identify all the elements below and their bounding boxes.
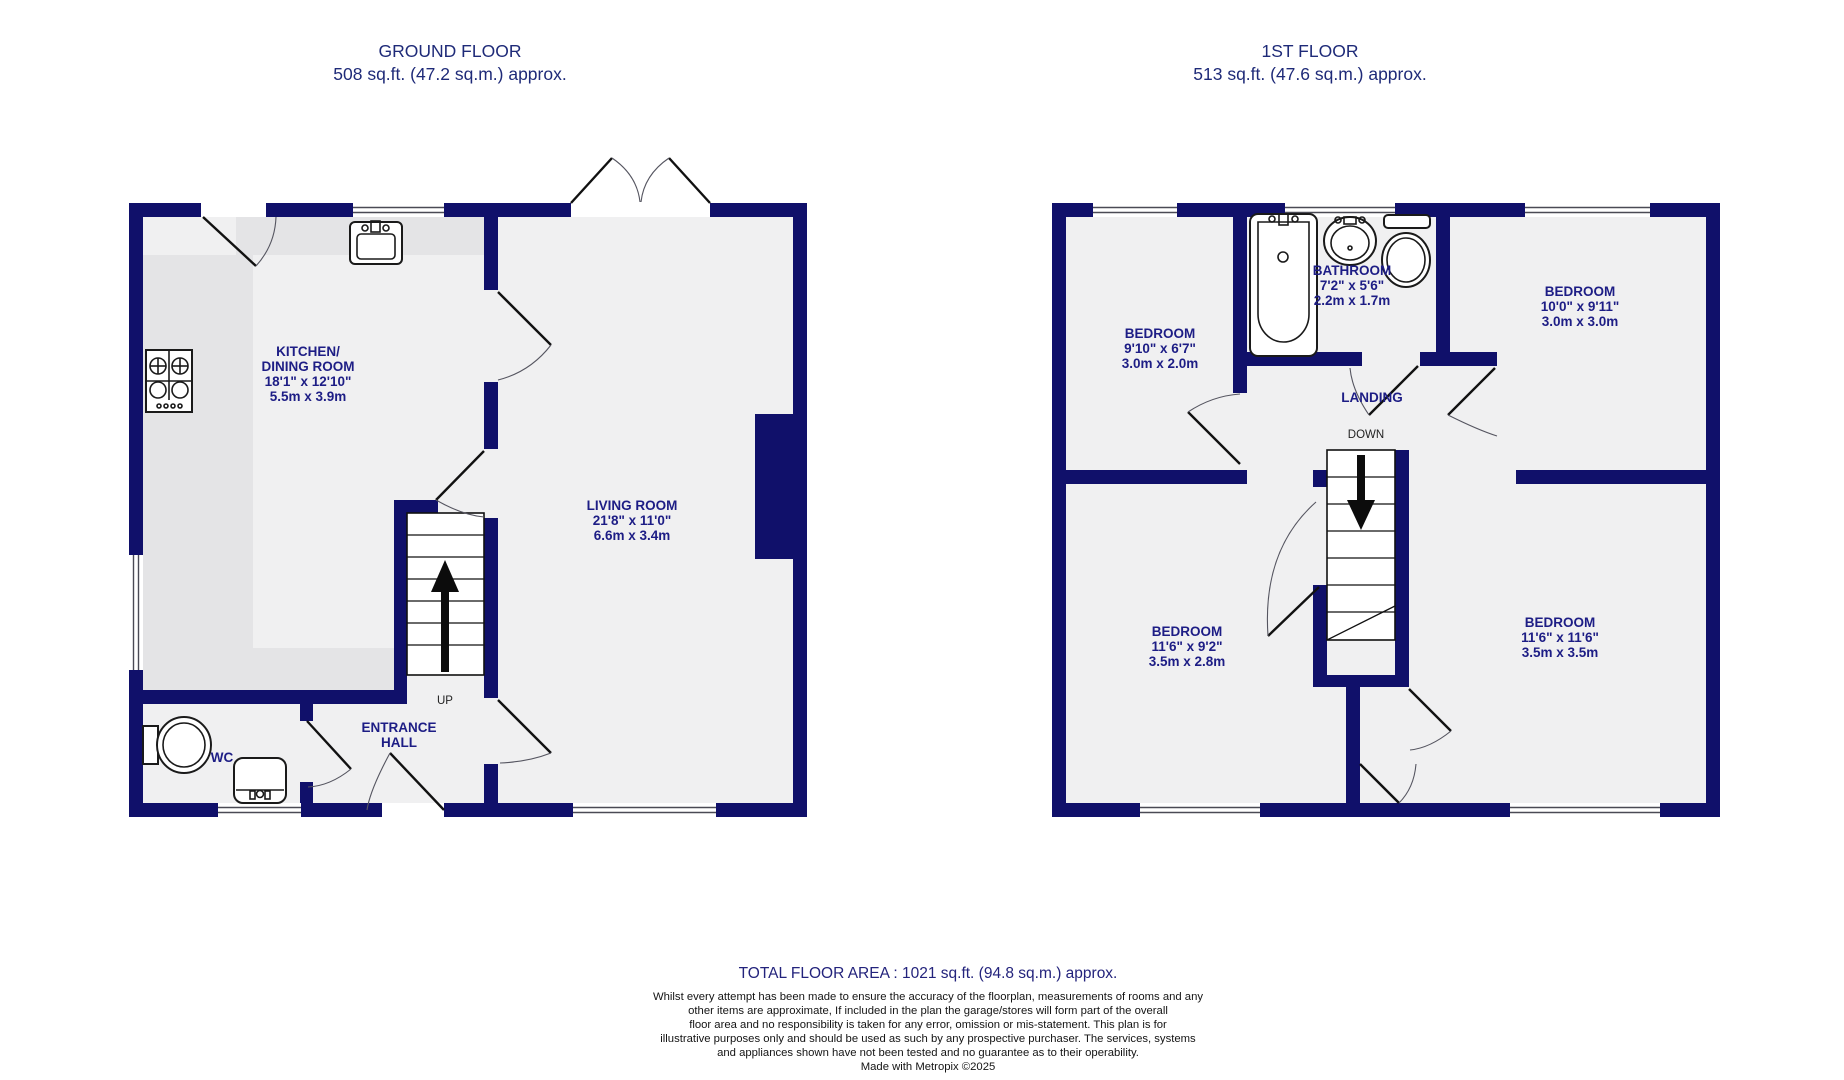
bedroom-tr-window-icon bbox=[1525, 203, 1650, 217]
svg-text:11'6" x 9'2": 11'6" x 9'2" bbox=[1151, 639, 1222, 654]
kitchen-window-icon bbox=[353, 203, 444, 217]
svg-text:KITCHEN/: KITCHEN/ bbox=[276, 344, 340, 359]
front-door-opening bbox=[382, 803, 444, 817]
disclaimer-line-2: other items are approximate, If included… bbox=[688, 1005, 1168, 1017]
living-room-label: LIVING ROOM 21'8" x 11'0" 6.6m x 3.4m bbox=[587, 498, 678, 543]
stairs-up-icon bbox=[407, 513, 484, 675]
svg-text:BEDROOM: BEDROOM bbox=[1545, 284, 1616, 299]
bedroom-br-window-icon bbox=[1510, 803, 1660, 817]
bathroom-sink-icon bbox=[1324, 217, 1376, 265]
stairs-down-icon bbox=[1327, 450, 1395, 640]
french-door-opening bbox=[571, 203, 710, 217]
floorplan-canvas: GROUND FLOOR 508 sq.ft. (47.2 sq.m.) app… bbox=[0, 0, 1844, 1080]
footer: TOTAL FLOOR AREA : 1021 sq.ft. (94.8 sq.… bbox=[653, 965, 1203, 1073]
svg-text:LIVING ROOM: LIVING ROOM bbox=[587, 498, 678, 513]
svg-text:BATHROOM: BATHROOM bbox=[1313, 263, 1392, 278]
svg-text:3.5m x 2.8m: 3.5m x 2.8m bbox=[1149, 654, 1226, 669]
svg-text:BEDROOM: BEDROOM bbox=[1525, 615, 1596, 630]
wc-sink-icon bbox=[234, 758, 286, 803]
metropix-credit: Made with Metropix ©2025 bbox=[861, 1061, 996, 1073]
disclaimer-line-1: Whilst every attempt has been made to en… bbox=[653, 991, 1203, 1003]
svg-text:3.0m x 2.0m: 3.0m x 2.0m bbox=[1122, 356, 1199, 371]
bedroom-bl-window-icon bbox=[1140, 803, 1260, 817]
first-floor-title: 1ST FLOOR bbox=[1262, 41, 1359, 61]
bathroom-label: BATHROOM 7'2" x 5'6" 2.2m x 1.7m bbox=[1313, 263, 1392, 308]
first-floor-area: 513 sq.ft. (47.6 sq.m.) approx. bbox=[1193, 64, 1426, 84]
svg-text:9'10" x 6'7": 9'10" x 6'7" bbox=[1124, 341, 1196, 356]
svg-text:6.6m x 3.4m: 6.6m x 3.4m bbox=[594, 528, 671, 543]
ground-floor-plan: GROUND FLOOR 508 sq.ft. (47.2 sq.m.) app… bbox=[129, 41, 807, 817]
back-door-opening bbox=[201, 203, 266, 217]
first-floor-plan: 1ST FLOOR 513 sq.ft. (47.6 sq.m.) approx… bbox=[1052, 41, 1720, 817]
svg-text:3.0m x 3.0m: 3.0m x 3.0m bbox=[1542, 314, 1619, 329]
svg-text:DINING ROOM: DINING ROOM bbox=[262, 359, 355, 374]
svg-text:5.5m x 3.9m: 5.5m x 3.9m bbox=[270, 389, 347, 404]
disclaimer-line-3: floor area and no responsibility is take… bbox=[689, 1019, 1167, 1031]
down-label: DOWN bbox=[1348, 429, 1384, 441]
svg-text:11'6" x 11'6": 11'6" x 11'6" bbox=[1521, 630, 1599, 645]
wc-toilet-icon bbox=[143, 717, 211, 773]
bedroom-br-label: BEDROOM 11'6" x 11'6" 3.5m x 3.5m bbox=[1521, 615, 1599, 660]
svg-text:10'0" x 9'11": 10'0" x 9'11" bbox=[1541, 299, 1620, 314]
bedroom-bl-label: BEDROOM 11'6" x 9'2" 3.5m x 2.8m bbox=[1149, 624, 1226, 669]
bathtub-icon bbox=[1250, 214, 1317, 356]
french-doors bbox=[571, 158, 710, 203]
landing-label: LANDING bbox=[1341, 390, 1403, 405]
svg-text:BEDROOM: BEDROOM bbox=[1152, 624, 1223, 639]
side-window-icon bbox=[129, 555, 143, 670]
bedroom-tr-label: BEDROOM 10'0" x 9'11" 3.0m x 3.0m bbox=[1541, 284, 1620, 329]
total-floor-area: TOTAL FLOOR AREA : 1021 sq.ft. (94.8 sq.… bbox=[739, 965, 1118, 982]
bedroom-tl-window-icon bbox=[1093, 203, 1177, 217]
hob-icon bbox=[146, 350, 192, 412]
disclaimer-line-5: and appliances shown have not been teste… bbox=[717, 1047, 1139, 1059]
svg-text:BEDROOM: BEDROOM bbox=[1125, 326, 1196, 341]
svg-text:7'2" x 5'6": 7'2" x 5'6" bbox=[1320, 278, 1384, 293]
svg-text:18'1" x 12'10": 18'1" x 12'10" bbox=[265, 374, 352, 389]
disclaimer-line-4: illustrative purposes only and should be… bbox=[660, 1033, 1196, 1045]
svg-text:3.5m x 3.5m: 3.5m x 3.5m bbox=[1522, 645, 1599, 660]
chimney-breast bbox=[755, 414, 793, 559]
svg-text:ENTRANCE: ENTRANCE bbox=[361, 720, 436, 735]
up-label: UP bbox=[437, 695, 453, 707]
living-window-icon bbox=[573, 803, 716, 817]
kitchen-sink-icon bbox=[350, 221, 402, 264]
wc-label: WC bbox=[211, 750, 234, 765]
svg-text:HALL: HALL bbox=[381, 735, 417, 750]
ground-floor-area: 508 sq.ft. (47.2 sq.m.) approx. bbox=[333, 64, 566, 84]
wc-window-icon bbox=[218, 803, 301, 817]
bedroom-tl-label: BEDROOM 9'10" x 6'7" 3.0m x 2.0m bbox=[1122, 326, 1199, 371]
ground-floor-title: GROUND FLOOR bbox=[379, 41, 522, 61]
svg-text:21'8" x 11'0": 21'8" x 11'0" bbox=[593, 513, 672, 528]
svg-text:2.2m x 1.7m: 2.2m x 1.7m bbox=[1314, 293, 1391, 308]
